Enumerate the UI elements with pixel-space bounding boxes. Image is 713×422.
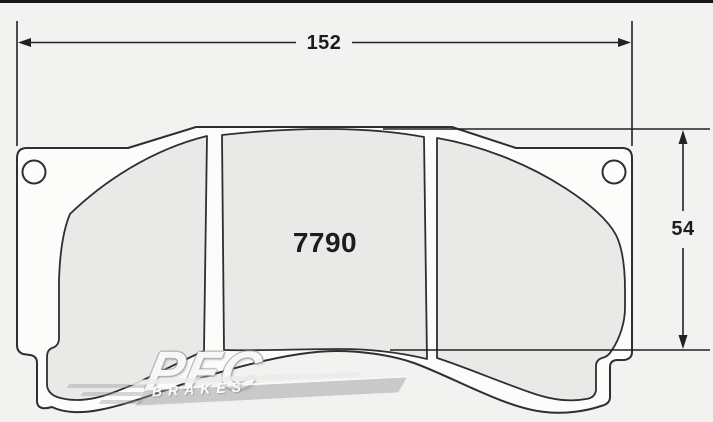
width-dim-arrow-right — [618, 38, 631, 47]
brake-pad-technical-drawing: 152 54 7790 PFC BRAKES — [0, 0, 713, 422]
part-number-label: 7790 — [275, 229, 375, 257]
drawing-canvas — [0, 0, 713, 422]
mounting-hole-right — [603, 161, 626, 184]
height-dim-arrow-up — [679, 130, 688, 144]
mounting-hole-left — [23, 161, 46, 184]
height-dim-arrow-down — [679, 335, 688, 349]
height-dimension-label: 54 — [663, 219, 703, 239]
width-dimension-label: 152 — [294, 33, 354, 53]
width-dim-arrow-left — [18, 38, 31, 47]
